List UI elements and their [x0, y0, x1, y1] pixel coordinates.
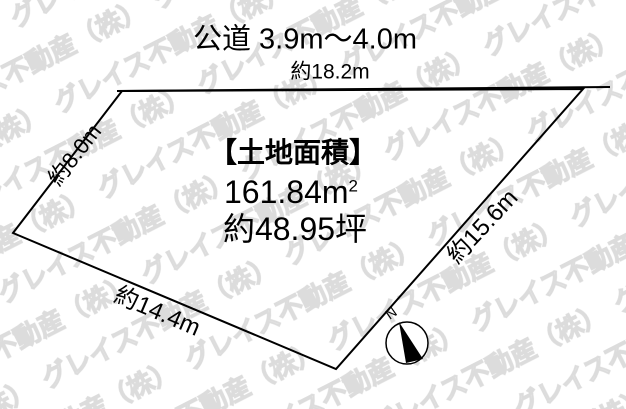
land-area-sqm-value: 161.84m	[224, 174, 349, 210]
land-area-sqm: 161.84m2	[224, 176, 358, 208]
compass	[386, 322, 428, 364]
land-plot-diagram: グレイス不動産（株） グレイス不動産（株） グレイス不動産（株） 公道 3.9m…	[0, 0, 626, 409]
road-label: 公道 3.9m〜4.0m	[193, 26, 417, 55]
land-area-sqm-sup: 2	[349, 176, 358, 195]
land-area-title: 【土地面積】	[209, 139, 377, 167]
land-area-tsubo: 約48.95坪	[223, 213, 367, 245]
top-edge-dimension: 約18.2m	[290, 62, 369, 83]
